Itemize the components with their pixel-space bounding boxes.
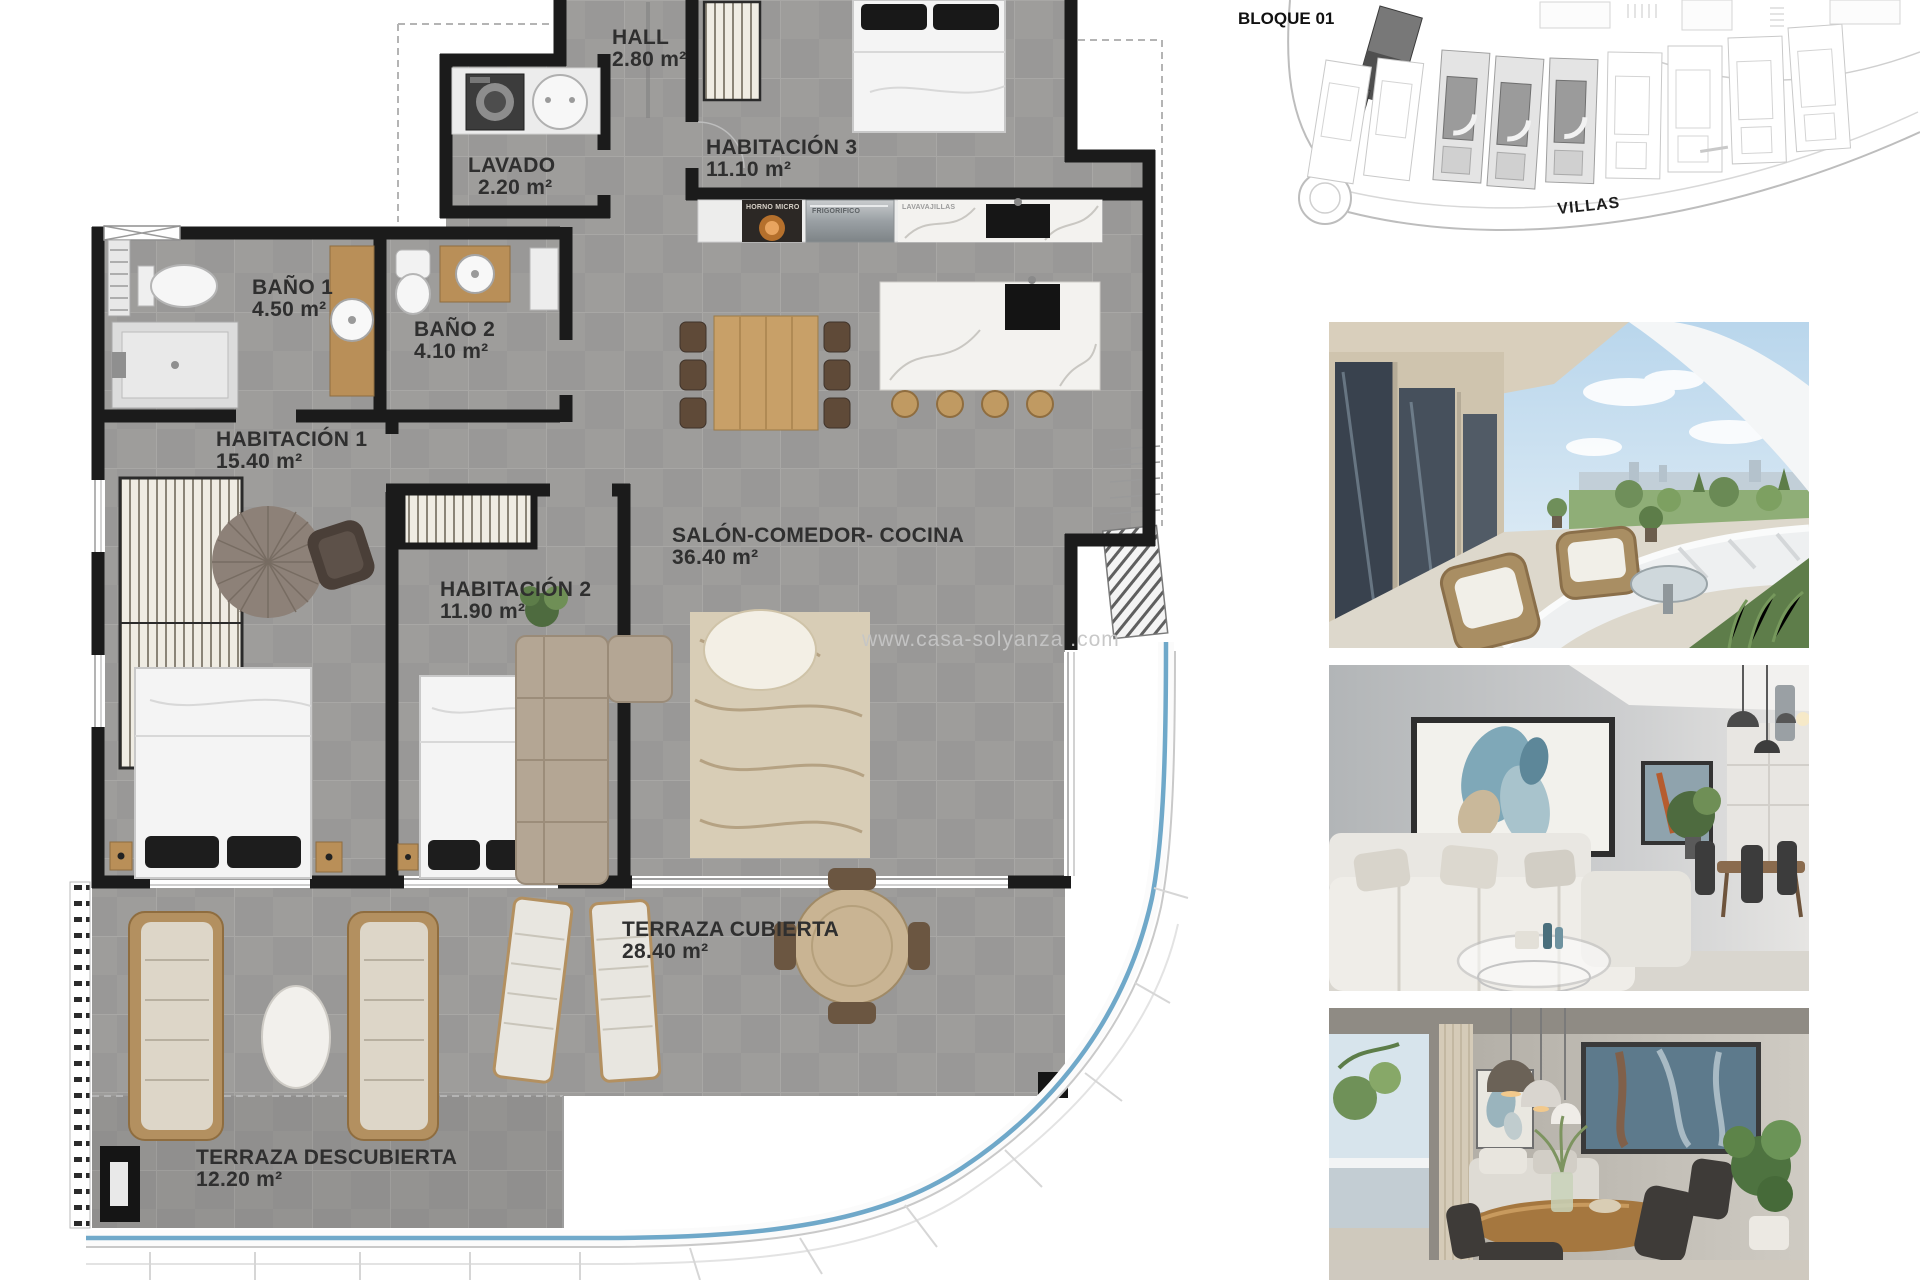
photo-terrace <box>1329 322 1809 648</box>
label-bed2-name: HABITACIÓN 2 <box>440 577 591 601</box>
slider-salon <box>632 876 1008 888</box>
site-plan: BLOQUE 01 VILLAS <box>1230 0 1920 245</box>
outdoor-sofa-a <box>129 912 223 1140</box>
label-fridge: FRIGORIFICO <box>812 208 860 215</box>
outdoor-side-table <box>262 986 330 1088</box>
pot-plant-a <box>1639 506 1663 530</box>
wardrobe-3 <box>704 2 760 100</box>
label-terrace-unc-area: 12.20 m² <box>196 1168 282 1191</box>
label-salon-name: SALÓN-COMEDOR- COCINA <box>672 523 964 547</box>
floor <box>1329 1260 1809 1280</box>
laundry-sink <box>533 75 587 129</box>
oven-micro: HORNO MICRO <box>742 200 802 242</box>
vanity-2 <box>440 246 510 302</box>
label-terrace-unc-name: TERRAZA DESCUBIERTA <box>196 1146 457 1169</box>
label-bed1-area: 15.40 m² <box>216 450 302 473</box>
shower-1 <box>112 322 238 408</box>
rug-round <box>212 506 324 618</box>
window-bath <box>104 226 180 240</box>
label-bath2-area: 4.10 m² <box>414 340 488 363</box>
extractor-hood <box>1775 685 1795 741</box>
label-terrace-cov-area: 28.40 m² <box>622 940 708 963</box>
pillar-sw <box>100 1146 140 1222</box>
window-bed1-b <box>91 655 105 727</box>
outdoor-sofa-b <box>348 912 438 1140</box>
label-bed3-area: 11.10 m² <box>706 158 791 181</box>
balcony-view <box>1329 1028 1439 1280</box>
watermark: www.casa-solyanza .com <box>862 628 1120 652</box>
photo-living-room <box>1329 665 1809 991</box>
fridge: FRIGORIFICO <box>806 200 894 242</box>
window-salon-east <box>1064 652 1078 876</box>
page: HORNO MICRO FRIGORIFICO LAVAVAJILLAS <box>0 0 1920 1280</box>
cushion-a <box>1353 847 1412 892</box>
bed-3 <box>853 0 1005 132</box>
label-bath1-area: 4.50 m² <box>252 298 326 321</box>
shower-column-2 <box>530 248 558 310</box>
label-bath1-name: BAÑO 1 <box>252 276 333 299</box>
washing-machine <box>466 74 524 130</box>
terrace-left-strip <box>70 882 90 1228</box>
dining-chairs <box>1695 841 1797 903</box>
label-dishwasher: LAVAVAJILLAS <box>902 204 955 211</box>
label-bed2-area: 11.90 m² <box>440 600 525 623</box>
pot-plant-b <box>1547 498 1567 518</box>
toilet-2 <box>396 250 430 314</box>
marble-counter: LAVAVAJILLAS <box>898 198 1102 242</box>
label-terrace-cov-name: TERRAZA CUBIERTA <box>622 918 839 941</box>
label-hall-area: 2.80 m² <box>612 48 686 71</box>
bed-1 <box>135 668 311 878</box>
bowl <box>1589 1199 1621 1213</box>
cushion-c <box>1524 849 1577 889</box>
label-lavado-name: LAVADO <box>468 154 555 177</box>
photo-dining-room <box>1329 1008 1809 1280</box>
villas-highlighted <box>1433 50 1598 189</box>
label-oven: HORNO MICRO <box>746 204 800 211</box>
wardrobe-2 <box>402 492 534 546</box>
label-bath2-name: BAÑO 2 <box>414 318 495 341</box>
window-bed1-a <box>91 480 105 552</box>
laundry-fixtures <box>452 68 600 134</box>
label-salon-area: 36.40 m² <box>672 546 758 569</box>
label-bed3-name: HABITACIÓN 3 <box>706 135 857 159</box>
kitchen-sink <box>986 204 1050 238</box>
ceiling-band <box>1329 1008 1809 1034</box>
label-hall-name: HALL <box>612 26 669 49</box>
coffee-table-oval <box>704 610 816 690</box>
toilet-1 <box>138 265 217 307</box>
rug-salon <box>690 610 870 858</box>
vanity-1 <box>330 246 374 396</box>
label-lavado-area: 2.20 m² <box>478 176 552 199</box>
bloque-label: BLOQUE 01 <box>1238 9 1334 28</box>
dining-table <box>680 316 850 430</box>
label-bed1-name: HABITACIÓN 1 <box>216 427 367 451</box>
kitchen-counter: HORNO MICRO FRIGORIFICO LAVAVAJILLAS <box>698 198 1102 242</box>
cushion-b <box>1439 844 1499 890</box>
